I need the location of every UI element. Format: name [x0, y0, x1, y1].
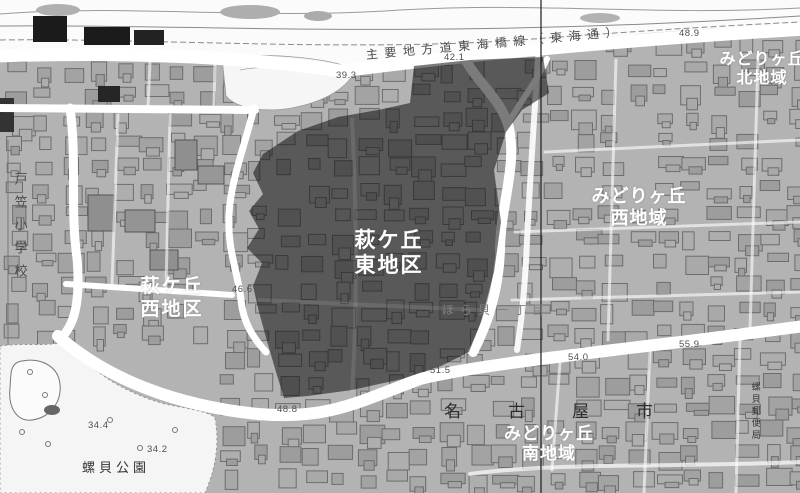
map-viewport: 萩ケ丘東地区萩ケ丘西地区みどりヶ丘北地域みどりヶ丘西地域みどりヶ丘南地域戸笠小学… [0, 0, 800, 493]
map-canvas [0, 0, 800, 493]
